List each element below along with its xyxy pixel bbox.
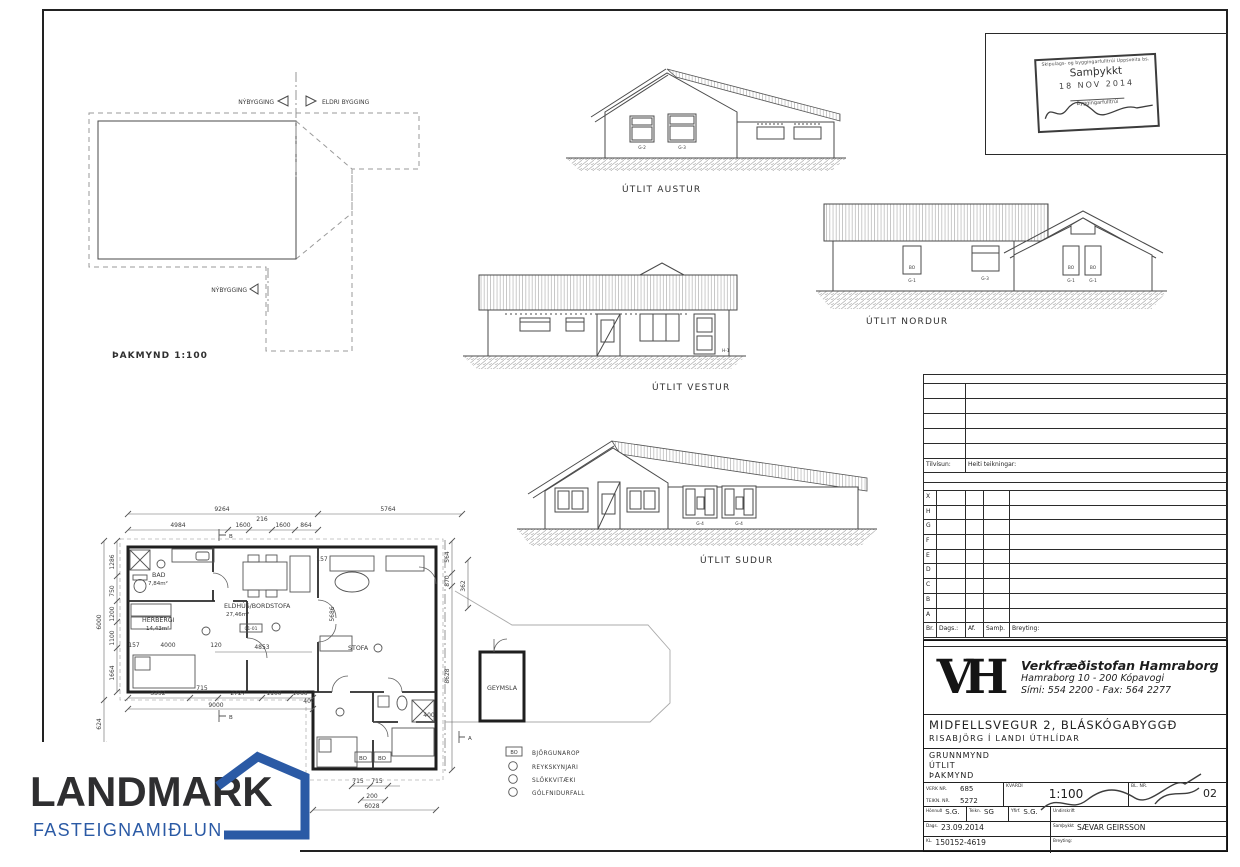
approval-stamp: Skipulags- og byggingarfulltrúi Uppsveit… (1034, 53, 1160, 133)
breyting-label: Breyting: (1053, 838, 1072, 843)
legend-symbol-bo: BO (510, 750, 517, 756)
dim: 9264 (214, 506, 229, 513)
dim: 200 (366, 793, 378, 800)
dim: 715 (371, 778, 383, 785)
dim: 400 (303, 698, 315, 705)
room-stofa: STOFA (348, 645, 369, 652)
window-tag-g4b: G-4 (735, 521, 743, 527)
drawing-sheet: NÝBYGGING ELDRI BYGGING NÝBYGGING ÞAKMYN… (0, 0, 1240, 867)
rev-letter: C (924, 579, 937, 593)
dim: 4984 (170, 522, 185, 529)
rev-letter: A (924, 609, 937, 623)
company-address: Hamraborg 10 - 200 Kópavogi (1021, 673, 1219, 685)
dim: 5686 (329, 606, 336, 621)
elevation-east-label: ÚTLIT AUSTUR (622, 183, 701, 195)
room-eldhus: ELDHÚS/BORDSTOFA (224, 601, 291, 610)
dim: 624 (96, 718, 103, 730)
hannad-label: Hönnuð (926, 808, 942, 813)
elevation-west: H-1 ÚTLIT VESTUR (463, 263, 746, 393)
plan-legend: BO BJÖRGUNAROP REYKSKYNJARI SLÖKKVITÆKI … (506, 747, 585, 797)
yfirf-label: Yfirf. (1011, 808, 1020, 813)
verk-nr-value: 685 (960, 785, 973, 793)
room-bad-area: 7,84m² (148, 580, 168, 587)
kl-value: 150152-4619 (935, 838, 985, 847)
section-marker-b: B (229, 534, 233, 540)
dim: 1664 (109, 665, 116, 680)
elevation-south: G-4 G-4 ÚTLIT SUDUR (517, 441, 877, 566)
dim: 1286 (109, 554, 116, 569)
dags-value: 23.09.2014 (941, 823, 984, 832)
plan-bo-marker2: BO (378, 756, 387, 762)
rev-letter: F (924, 535, 937, 549)
roof-new-label2: NÝBYGGING (211, 287, 247, 294)
samthykkt-label: Samþykkt (1053, 823, 1074, 828)
stamp-area-box: Skipulags- og byggingarfulltrúi Uppsveit… (985, 33, 1228, 155)
rev-footer-br: Br. (924, 623, 937, 637)
yfirf-value: S.G. (1023, 808, 1037, 816)
dim: 864 (300, 522, 312, 529)
dim: 157 (128, 642, 140, 649)
dim: 4000 (160, 642, 175, 649)
rev-footer-breyting: Breyting: (1010, 623, 1227, 637)
company-phone: Sími: 554 2200 - Fax: 564 2277 (1021, 685, 1219, 697)
elevation-west-label: ÚTLIT VESTUR (652, 381, 730, 393)
dim: 870 (444, 575, 451, 587)
section-marker-b2: B (229, 715, 233, 721)
dim: 6000 (96, 614, 103, 629)
dim: 120 (210, 642, 222, 649)
window-tag-g3b: G-3 (981, 276, 989, 282)
dim: 715 (352, 778, 364, 785)
fixtures (130, 549, 434, 767)
dim: 5764 (380, 506, 395, 513)
rev-letter: G (924, 520, 937, 534)
window-tag-g1b: G-1 (1067, 278, 1075, 284)
legend-label-reykskynjari: REYKSKYNJARI (532, 765, 578, 771)
dim: 362 (460, 580, 467, 592)
hannad-value: S.G. (945, 808, 959, 816)
window-tag-g4: G-4 (696, 521, 704, 527)
rev-footer-af: Af. (966, 623, 984, 637)
project-subtitle: RISABJÖRG Í LANDI ÚTHLÍDAR (929, 734, 1222, 743)
rev-letter: X (924, 491, 937, 505)
landmark-tagline: FASTEIGNAMIÐLUN (33, 820, 223, 841)
content-grunnmynd: GRUNNMYND (929, 751, 1222, 761)
teikn-value: SG (984, 808, 994, 816)
elevation-east: G-2 G-3 ÚTLIT AUSTUR (566, 69, 846, 195)
company-name: Verkfræðistofan Hamraborg (1021, 658, 1219, 674)
elevation-north: BO G-1 G-3 BO BO G-1 G-1 ÚTLIT NORDUR (816, 204, 1167, 327)
room-herbergi: HERBERGI (142, 617, 175, 624)
project-title: MIDFELLSVEGUR 2, BLÁSKÓGABYGGÐ (929, 718, 1222, 732)
dim: 750 (109, 585, 116, 597)
rev-letter: B (924, 594, 937, 608)
rev-footer-dags: Dags.: (937, 623, 966, 637)
dim: 400 (423, 712, 435, 719)
rev-letter: E (924, 550, 937, 564)
window-tag-g1: G-1 (908, 278, 916, 284)
elevation-north-label: ÚTLIT NORDUR (866, 315, 948, 327)
vh-logo: VH (924, 643, 1021, 713)
dim: 157 (316, 556, 328, 563)
roof-plan-title: ÞAKMYND 1:100 (112, 351, 208, 361)
room-geymsla: GEYMSLA (487, 685, 518, 692)
dim: 216 (256, 516, 268, 523)
kl-label: KL. (926, 838, 932, 843)
landmark-logo: LANDMARK FASTEIGNAMIÐLUN (26, 742, 300, 854)
landmark-house-icon (210, 742, 316, 846)
verk-nr-label: VERK NR. (926, 787, 960, 792)
revision-table: Tilvísun: Heiti teikningar: X H G F E D … (923, 374, 1228, 640)
roof-new-label: NÝBYGGING (238, 99, 274, 106)
window-tag-g3: G-3 (678, 145, 686, 151)
door-tag-h1: H-1 (722, 348, 730, 354)
samthykkt-value: SÆVAR GEIRSSON (1077, 823, 1145, 832)
dim: 1066 (292, 690, 307, 697)
dim: 2727 (230, 690, 245, 697)
dags-label: Dags. (926, 823, 938, 828)
content-utlit: ÚTLIT (929, 761, 1222, 771)
room-eldhus-area: 27,46m² (226, 611, 249, 618)
plan-bo-marker: BO (359, 756, 368, 762)
dim: 564 (444, 551, 451, 563)
rev-letter: H (924, 506, 937, 520)
dim: 6028 (364, 803, 379, 810)
window-bo-tag2: BO (1068, 265, 1075, 271)
kvardi-value: 1:100 (1006, 787, 1126, 801)
legend-label-slokkvitaeki: SLÖKKVITÆKI (532, 777, 576, 784)
heiti-header: Heiti teikningar: (966, 459, 1227, 472)
dim: 715 (196, 685, 208, 692)
plan-ref-tag: 01-01 (244, 626, 257, 632)
dim: 1100 (266, 690, 281, 697)
dim: 9000 (208, 702, 223, 709)
dim: 8628 (444, 668, 451, 683)
window-tag-g2: G-2 (638, 145, 646, 151)
legend-label-golfnidurfall: GÓLFNIDURFALL (532, 790, 585, 797)
dim: 1100 (109, 630, 116, 645)
content-thakmynd: ÞAKMYND (929, 771, 1222, 781)
legend-label-bjorgunarop: BJÖRGUNAROP (532, 750, 580, 757)
dim: 4853 (254, 644, 269, 651)
dim: 1200 (109, 606, 116, 621)
teikn-nr-label: TEIKN. NR. (926, 799, 960, 804)
title-block: VH Verkfræðistofan Hamraborg Hamraborg 1… (923, 640, 1228, 852)
dim: 3392 (150, 690, 165, 697)
teikn-nr-value: 5272 (960, 797, 978, 805)
section-marker-a: A (468, 736, 472, 742)
window-bo-tag: BO (909, 265, 916, 271)
dim: 1600 (235, 522, 250, 529)
roof-old-label: ELDRI BYGGING (322, 99, 370, 106)
room-bad: BAD (152, 572, 166, 579)
rev-footer-samth: Samþ. (984, 623, 1010, 637)
teikn-label: Teikn. (969, 808, 981, 813)
dim: 1600 (275, 522, 290, 529)
roof-plan: NÝBYGGING ELDRI BYGGING NÝBYGGING ÞAKMYN… (89, 72, 419, 361)
window-bo-tag3: BO (1090, 265, 1097, 271)
elevation-south-label: ÚTLIT SUDUR (700, 554, 773, 566)
stamp-signature (1040, 93, 1157, 125)
room-herbergi-area: 14,43m² (146, 625, 169, 632)
tilvisun-header: Tilvísun: (924, 459, 966, 472)
window-tag-g1c: G-1 (1089, 278, 1097, 284)
undirskrift-label: Undirskrift (1053, 808, 1075, 813)
rev-letter: D (924, 564, 937, 578)
